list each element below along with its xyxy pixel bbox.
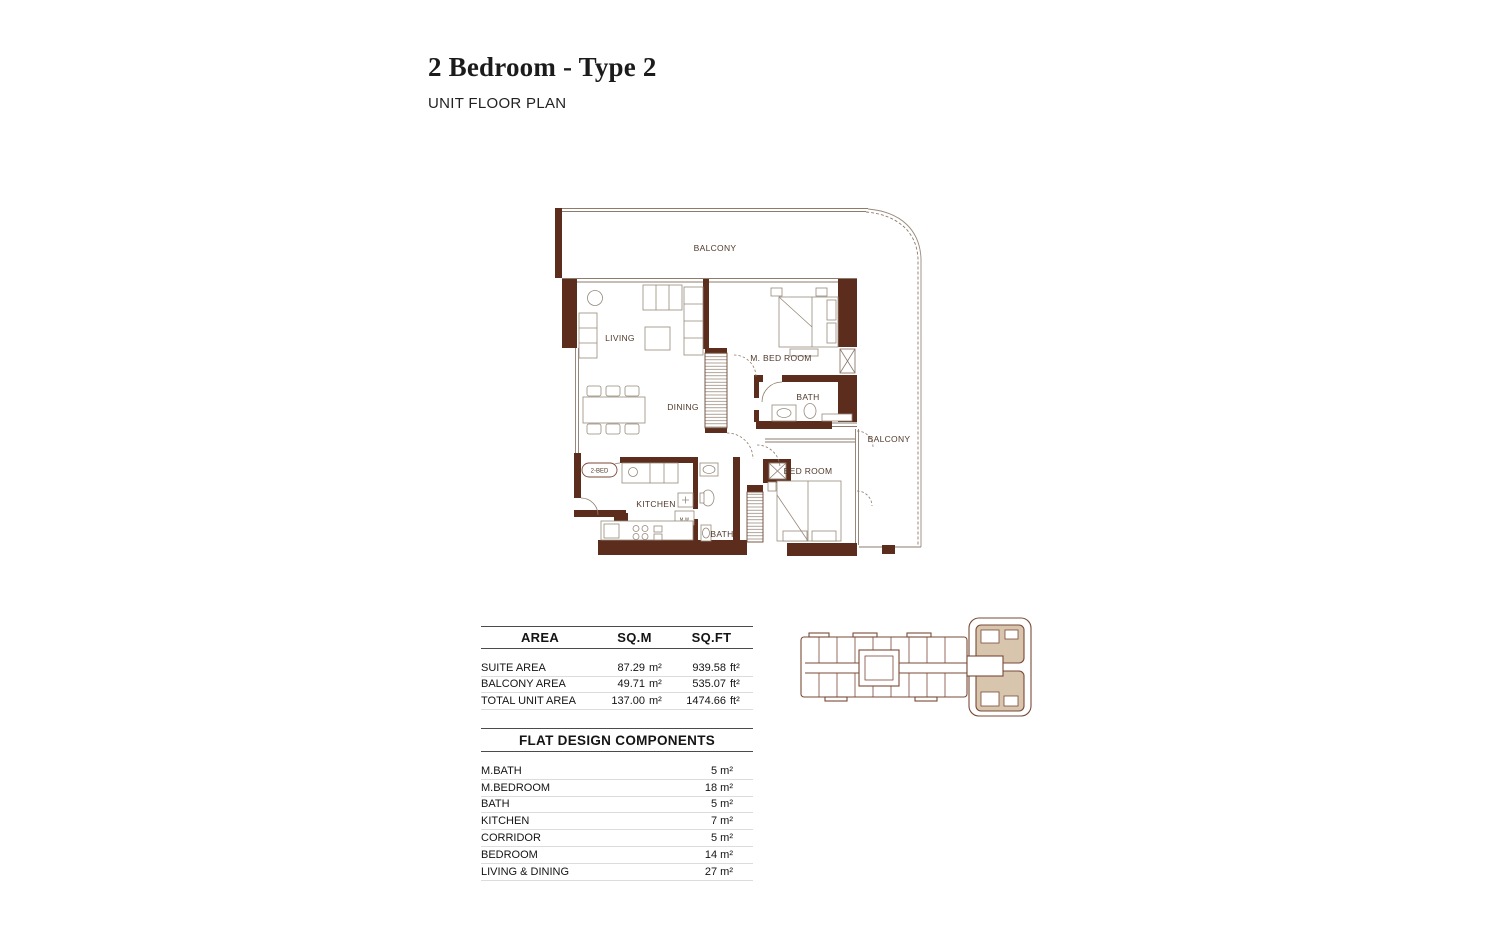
table-row: BEDROOM 14 m² <box>481 847 753 864</box>
row-label: BALCONY AREA <box>481 678 599 690</box>
label-master-bath: BATH <box>796 392 819 402</box>
table-row: BALCONY AREA 49.71 m² 535.07 ft² <box>481 677 753 694</box>
unit-floor-plan-drawing: 2-BED BALCONY LIVING DINING M. BED ROOM … <box>550 195 940 580</box>
component-value: 5 m² <box>683 832 753 844</box>
unit-tag-label: 2-BED <box>591 469 609 475</box>
component-value: 18 m² <box>683 782 753 794</box>
table-row: BATH 5 m² <box>481 797 753 814</box>
table-row: M.BATH 5 m² <box>481 763 753 780</box>
sqm-unit: m² <box>645 678 670 690</box>
label-microwave: M.W <box>680 517 690 522</box>
sqft-unit: ft² <box>726 695 753 707</box>
col-header-sqft: SQ.FT <box>670 630 753 645</box>
label-balcony-top: BALCONY <box>694 243 737 253</box>
page-subtitle: UNIT FLOOR PLAN <box>428 95 566 112</box>
sqft-value: 535.07 <box>670 678 726 690</box>
row-label: SUITE AREA <box>481 662 599 674</box>
component-label: BEDROOM <box>481 849 683 861</box>
components-table-title: FLAT DESIGN COMPONENTS <box>481 729 753 751</box>
label-dining: DINING <box>667 402 699 412</box>
components-table: FLAT DESIGN COMPONENTS M.BATH 5 m² M.BED… <box>481 728 753 881</box>
sqft-unit: ft² <box>726 678 753 690</box>
component-label: CORRIDOR <box>481 832 683 844</box>
sqm-value: 137.00 <box>599 695 645 707</box>
col-header-area: AREA <box>481 630 599 645</box>
sqm-value: 49.71 <box>599 678 645 690</box>
label-bedroom: BED ROOM <box>784 466 833 476</box>
component-value: 14 m² <box>683 849 753 861</box>
balcony-outline <box>562 209 921 548</box>
table-row: TOTAL UNIT AREA 137.00 m² 1474.66 ft² <box>481 693 753 710</box>
table-row: M.BEDROOM 18 m² <box>481 780 753 797</box>
floor-plan-page: 2 Bedroom - Type 2 UNIT FLOOR PLAN <box>0 0 1500 941</box>
sqft-value: 939.58 <box>670 662 726 674</box>
page-title: 2 Bedroom - Type 2 <box>428 52 657 83</box>
col-header-sqm: SQ.M <box>599 630 670 645</box>
table-row: LIVING & DINING 27 m² <box>481 864 753 881</box>
component-label: KITCHEN <box>481 815 683 827</box>
row-label: TOTAL UNIT AREA <box>481 695 599 707</box>
area-table: AREA SQ.M SQ.FT SUITE AREA 87.29 m² 939.… <box>481 626 753 710</box>
label-kitchen: KITCHEN <box>636 499 675 509</box>
table-row: KITCHEN 7 m² <box>481 813 753 830</box>
label-master-bedroom: M. BED ROOM <box>750 353 811 363</box>
component-value: 5 m² <box>683 798 753 810</box>
component-label: M.BATH <box>481 765 683 777</box>
component-value: 7 m² <box>683 815 753 827</box>
component-label: LIVING & DINING <box>481 866 683 878</box>
component-value: 27 m² <box>683 866 753 878</box>
component-value: 5 m² <box>683 765 753 777</box>
building-key-plan <box>795 612 1035 722</box>
component-label: BATH <box>481 798 683 810</box>
sqm-unit: m² <box>645 662 670 674</box>
label-bath: BATH <box>710 529 733 539</box>
sqft-unit: ft² <box>726 662 753 674</box>
table-row: SUITE AREA 87.29 m² 939.58 ft² <box>481 660 753 677</box>
sqm-value: 87.29 <box>599 662 645 674</box>
label-balcony-right: BALCONY <box>868 434 911 444</box>
sqm-unit: m² <box>645 695 670 707</box>
table-row: CORRIDOR 5 m² <box>481 830 753 847</box>
component-label: M.BEDROOM <box>481 782 683 794</box>
sqft-value: 1474.66 <box>670 695 726 707</box>
area-table-header: AREA SQ.M SQ.FT <box>481 627 753 648</box>
unit-tag: 2-BED <box>582 463 617 477</box>
label-living: LIVING <box>605 333 635 343</box>
